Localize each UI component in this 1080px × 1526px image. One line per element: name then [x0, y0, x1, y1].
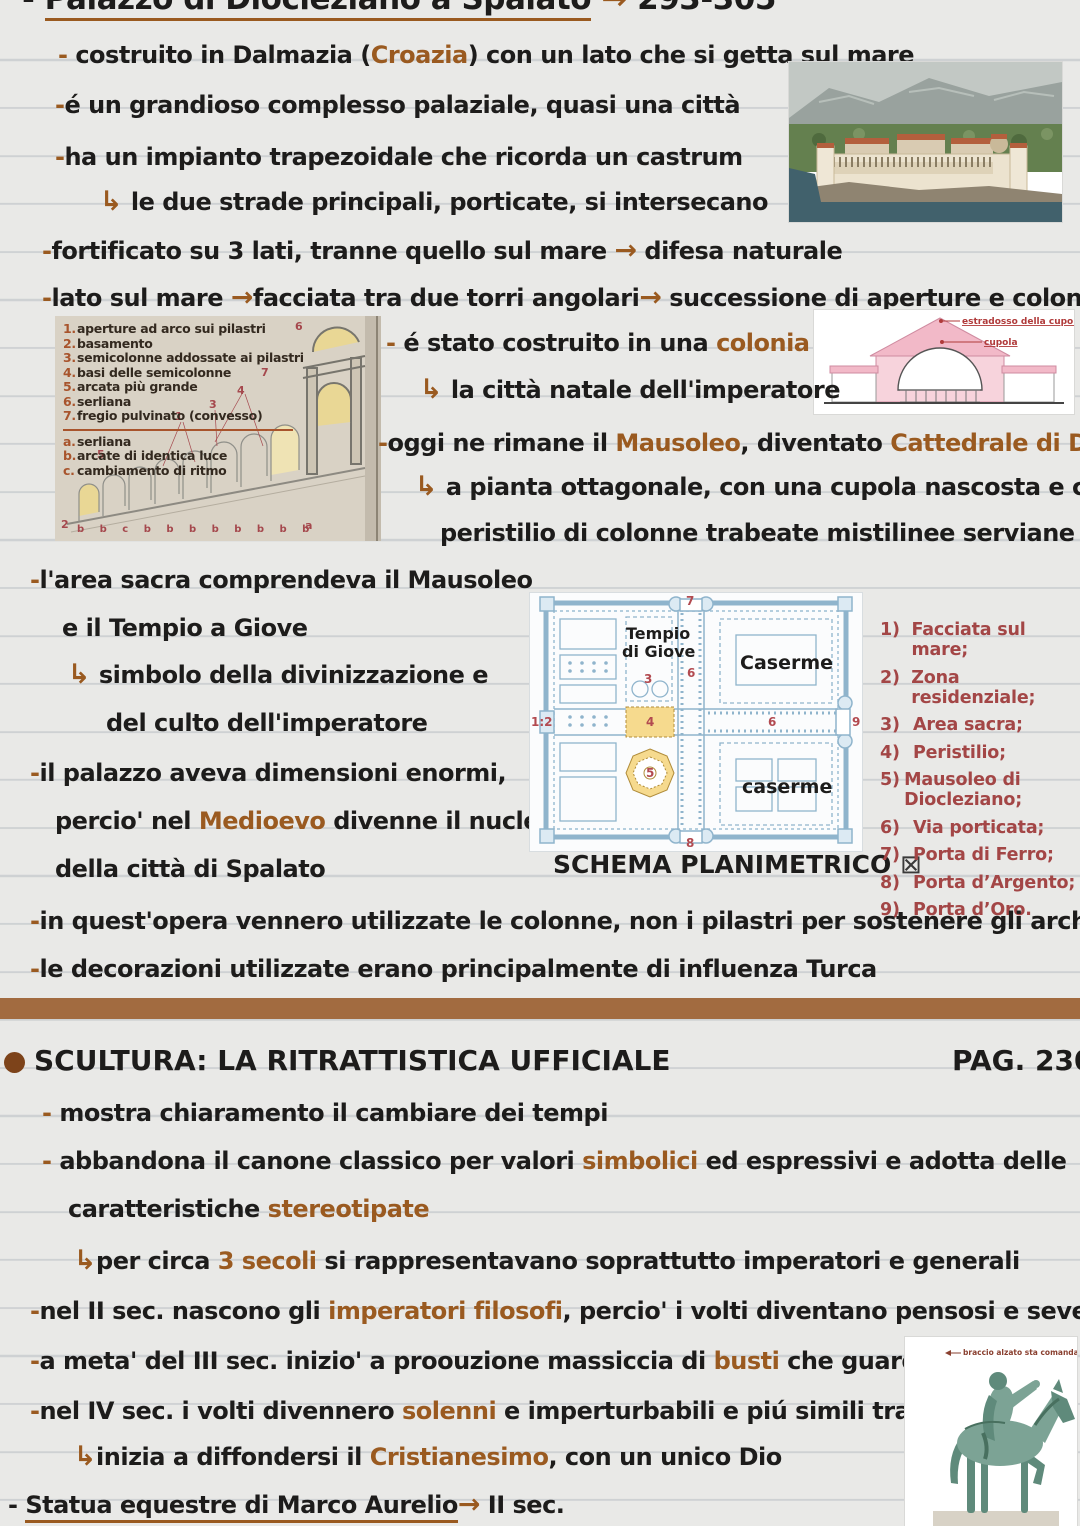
legend-number: 6) — [880, 818, 913, 838]
legend-text: Zona residenziale; — [911, 668, 1080, 708]
item-letter: a. — [63, 435, 77, 450]
item-number: 1. — [63, 322, 77, 337]
note-line: e il Tempio a Giove — [62, 613, 308, 643]
legend-item: 4) Peristilio; — [880, 743, 1080, 763]
note-line: -l'area sacra comprendeva il Mausoleo — [30, 565, 533, 595]
note-line: -in quest'opera vennero utilizzate le co… — [30, 906, 1080, 936]
temple-label-1: Tempio — [626, 624, 690, 643]
plan-number-8: 8 — [686, 836, 694, 850]
list-divider — [63, 429, 293, 431]
arcade-list-item: 7.fregio pulvinato (convesso) — [63, 409, 304, 424]
note-line: peristilio di colonne trabeate mistiline… — [440, 518, 1075, 548]
legend-item: 8) Porta d’Argento; — [880, 873, 1080, 893]
plan-number-4: 4 — [646, 715, 654, 729]
note-line: caratteristiche stereotipate — [68, 1194, 429, 1224]
plan-number-3: 3 — [644, 672, 652, 686]
legend-item: 5) Mausoleo di Diocleziano; — [880, 770, 1080, 810]
legend-item: 2) Zona residenziale; — [880, 668, 1080, 708]
statue-figure: braccio alzato sta comandando — [905, 1337, 1077, 1526]
legend-item: 6) Via porticata; — [880, 818, 1080, 838]
plan-caption: SCHEMA PLANIMETRICO ⊠ — [553, 850, 922, 880]
item-text: serliana — [77, 435, 131, 450]
item-number: 7. — [63, 409, 77, 424]
item-text: aperture ad arco sui pilastri — [77, 322, 266, 337]
note-line: - Statua equestre di Marco Aurelio→ II s… — [8, 1490, 564, 1520]
plan-number-5: 5 — [646, 766, 654, 780]
arcade-key-list: 1.aperture ad arco sui pilastri2.basamen… — [63, 322, 304, 478]
note-line: ↳ le due strade principali, porticate, s… — [100, 187, 768, 217]
arcade-list-item: 5.arcata più grande — [63, 380, 304, 395]
note-line: del culto dell'imperatore — [106, 708, 427, 738]
legend-number: 8) — [880, 873, 913, 893]
note-line: -ha un impianto trapezoidale che ricorda… — [55, 142, 743, 172]
legend-text: Mausoleo di Diocleziano; — [904, 770, 1080, 810]
legend-number: 7) — [880, 845, 913, 865]
palace-photo — [789, 62, 1062, 222]
item-number: 3. — [63, 351, 77, 366]
item-number: 4. — [63, 366, 77, 381]
notebook-page: - Palazzo di Diocleziano a Spalato → 293… — [0, 0, 1080, 1526]
plan-number-6a: 6 — [687, 666, 695, 680]
page-title: - Palazzo di Diocleziano a Spalato → 293… — [22, 0, 776, 14]
note-line: - costruito in Dalmazia (Croazia) con un… — [58, 40, 914, 70]
legend-text: Porta di Ferro; — [913, 845, 1054, 865]
legend-item: 1) Facciata sul mare; — [880, 620, 1080, 660]
item-text: basi delle semicolonne — [77, 366, 231, 381]
note-line: - abbandona il canone classico per valor… — [42, 1146, 1066, 1176]
page-reference: PAG. 230 — [952, 1046, 1080, 1076]
note-line: -fortificato su 3 lati, tranne quello su… — [42, 236, 842, 266]
bottom-letter-row: b b c b b b b b b b b — [77, 524, 315, 535]
arcade-list-item: 1.aperture ad arco sui pilastri — [63, 322, 304, 337]
item-text: arcata più grande — [77, 380, 197, 395]
cupola-section-figure: estradosso della cupola cupola — [814, 310, 1074, 414]
note-line: -le decorazioni utilizzate erano princip… — [30, 954, 877, 984]
item-letter: b. — [63, 449, 77, 464]
arcade-numbered-list: 1.aperture ad arco sui pilastri2.basamen… — [63, 322, 304, 424]
plan-number-7: 7 — [686, 594, 694, 608]
legend-number: 4) — [880, 743, 913, 763]
section-title: SCULTURA: LA RITRATTISTICA UFFICIALE — [34, 1046, 671, 1076]
item-number: 5. — [63, 380, 77, 395]
note-line: -oggi ne rimane il Mausoleo, diventato C… — [378, 428, 1080, 458]
note-line: -nel II sec. nascono gli imperatori filo… — [30, 1296, 1080, 1326]
legend-number: 5) — [880, 770, 904, 810]
note-line: ↳inizia a diffondersi il Cristianesimo, … — [74, 1442, 782, 1472]
statue-illustration: braccio alzato sta comandando — [905, 1337, 1077, 1526]
caserme-top-label: Caserme — [740, 652, 833, 674]
plan-number-6b: 6 — [768, 715, 776, 729]
arcade-figure: 1 2 3 4 5 6 7 a b b c b b b b b b b b 1.… — [55, 316, 381, 541]
plan-legend: 1) Facciata sul mare; 2) Zona residenzia… — [880, 620, 1080, 920]
caserme-bottom-label: caserme — [742, 776, 832, 798]
arcade-list-item: b.arcate di identica luce — [63, 449, 304, 464]
legend-text: Porta d’Argento; — [913, 873, 1075, 893]
item-text: semicolonne addossate ai pilastri — [77, 351, 304, 366]
note-line: -é un grandioso complesso palaziale, qua… — [55, 90, 740, 120]
item-text: cambiamento di ritmo — [77, 464, 226, 479]
note-line: percio' nel Medioevo divenne il nucleo — [55, 806, 555, 836]
arcade-lettered-list: a.serlianab.arcate di identica lucec.cam… — [63, 435, 304, 479]
item-text: serliana — [77, 395, 131, 410]
cupola-section-drawing: estradosso della cupola cupola — [814, 310, 1074, 414]
palace-photo-illustration — [789, 62, 1062, 222]
arcade-list-item: 6.serliana — [63, 395, 304, 410]
item-text: arcate di identica luce — [77, 449, 227, 464]
legend-text: Peristilio; — [913, 743, 1006, 763]
item-number: 6. — [63, 395, 77, 410]
legend-item: 3) Area sacra; — [880, 715, 1080, 735]
legend-number: 3) — [880, 715, 913, 735]
note-line: della città di Spalato — [55, 854, 325, 884]
legend-text: Facciata sul mare; — [912, 620, 1080, 660]
legend-text: Via porticata; — [913, 818, 1044, 838]
legend-text: Area sacra; — [913, 715, 1023, 735]
legend-item: 7) Porta di Ferro; — [880, 845, 1080, 865]
arcade-list-item: 4.basi delle semicolonne — [63, 366, 304, 381]
legend-number: 2) — [880, 668, 911, 708]
plan-caption-text: SCHEMA PLANIMETRICO — [553, 850, 891, 879]
temple-label-2: di Giove — [622, 642, 696, 661]
item-text: basamento — [77, 337, 153, 352]
legend-number: 1) — [880, 620, 912, 660]
note-line: ↳per circa 3 secoli si rappresentavano s… — [74, 1246, 1020, 1276]
arcade-list-item: c.cambiamento di ritmo — [63, 464, 304, 479]
item-letter: c. — [63, 464, 77, 479]
note-line: ↳ a pianta ottagonale, con una cupola na… — [415, 472, 1080, 502]
marker-2: 2 — [61, 518, 69, 531]
note-line: -lato sul mare →facciata tra due torri a… — [42, 283, 1080, 313]
note-line: - mostra chiaramento il cambiare dei tem… — [42, 1098, 608, 1128]
estradosso-label: estradosso della cupola — [962, 317, 1074, 327]
arcade-list-item: 3.semicolonne addossate ai pilastri — [63, 351, 304, 366]
item-number: 2. — [63, 337, 77, 352]
section-bullet-icon — [4, 1052, 25, 1073]
plan-number-9: 9 — [852, 715, 860, 729]
arcade-list-item: a.serliana — [63, 435, 304, 450]
plan-drawing: Tempio di Giove Caserme caserme 7 8 9 1:… — [530, 593, 862, 851]
arcade-list-item: 2.basamento — [63, 337, 304, 352]
note-line: -a meta' del III sec. inizio' a proouzio… — [30, 1346, 1057, 1376]
item-text: fregio pulvinato (convesso) — [77, 409, 262, 424]
note-line: ↳ la città natale dell'imperatore — [420, 375, 840, 405]
plan-number-12: 1:2 — [531, 715, 553, 729]
note-line: -nel IV sec. i volti divennero solenni e… — [30, 1396, 969, 1426]
statue-annotation: braccio alzato sta comandando — [963, 1348, 1077, 1357]
note-line: -il palazzo aveva dimensioni enormi, — [30, 758, 506, 788]
note-line: ↳ simbolo della divinizzazione e — [68, 660, 488, 690]
plan-figure: Tempio di Giove Caserme caserme 7 8 9 1:… — [530, 593, 862, 851]
note-line: - é stato costruito in una colonia — [386, 328, 810, 358]
cupola-label: cupola — [984, 338, 1018, 348]
section-divider-bar — [0, 998, 1080, 1019]
